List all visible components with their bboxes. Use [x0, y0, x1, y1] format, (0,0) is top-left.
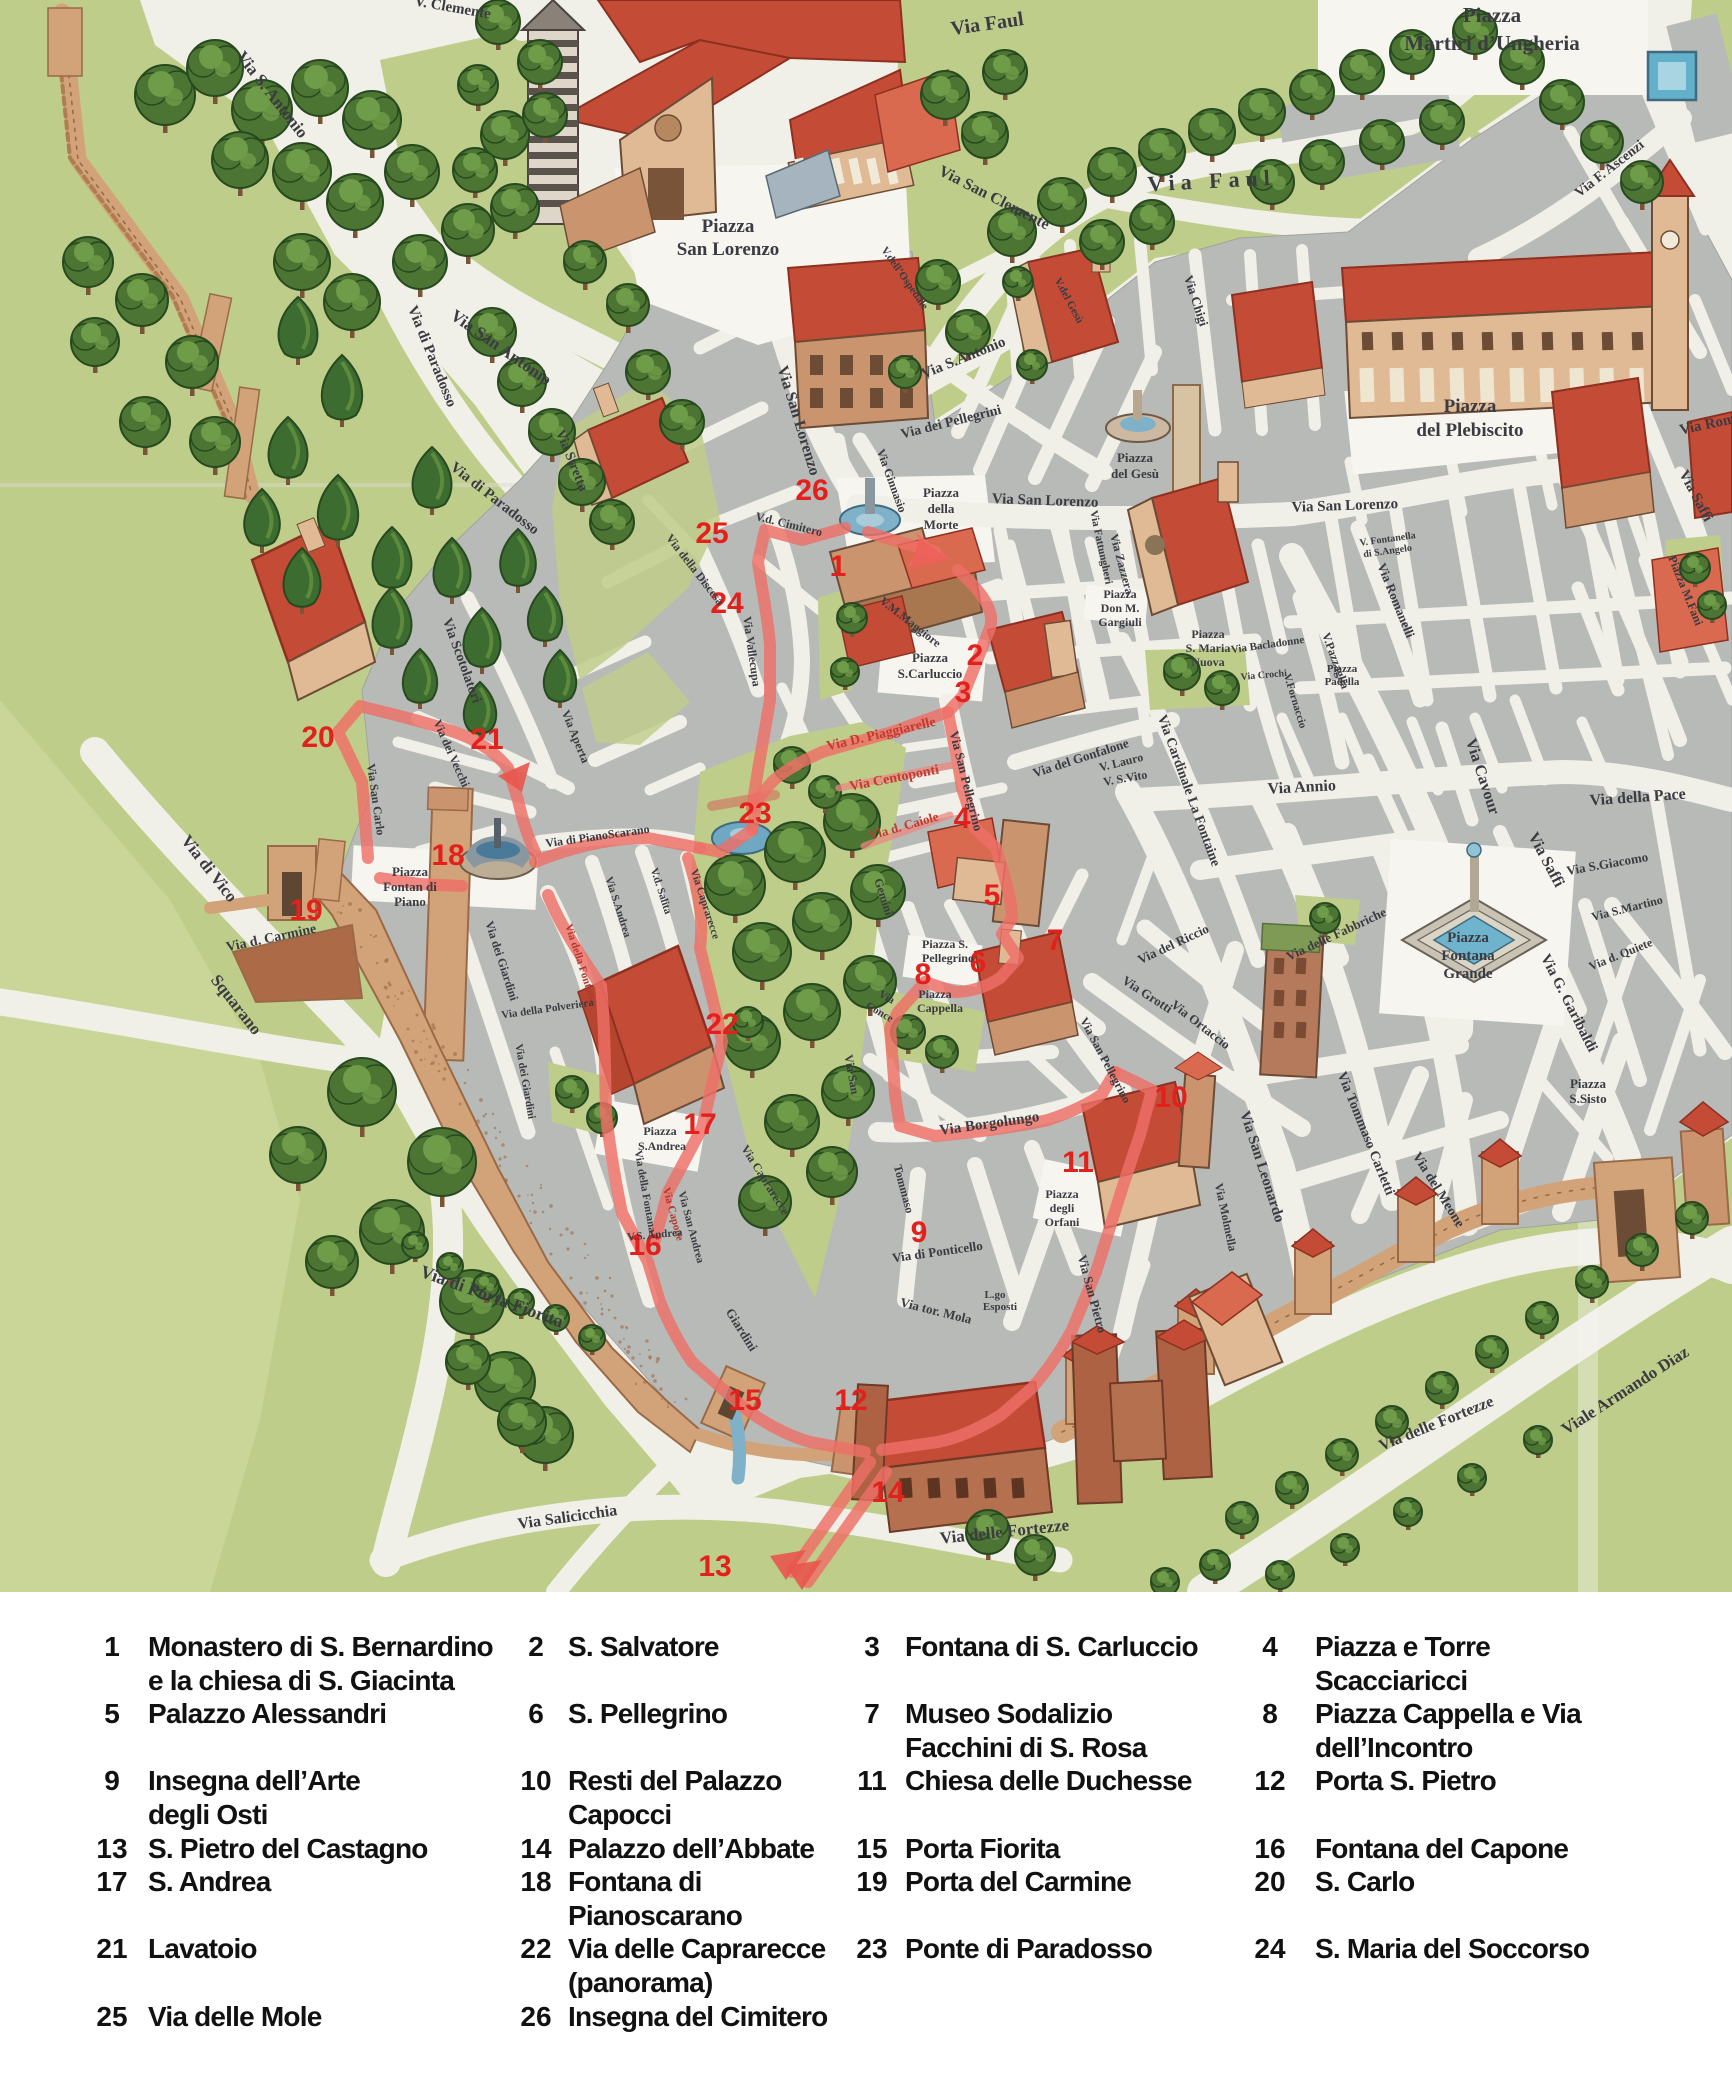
- svg-text:Porta del Carmine: Porta del Carmine: [905, 1866, 1131, 1897]
- svg-text:11: 11: [857, 1765, 887, 1796]
- svg-text:Padella: Padella: [1325, 676, 1360, 688]
- svg-text:20: 20: [301, 721, 334, 754]
- svg-text:16: 16: [1254, 1833, 1285, 1864]
- svg-text:Cappella: Cappella: [917, 1001, 963, 1015]
- svg-text:Piazza: Piazza: [1327, 663, 1358, 675]
- svg-text:S. Pellegrino: S. Pellegrino: [568, 1698, 728, 1729]
- svg-text:21: 21: [470, 723, 503, 756]
- svg-text:1: 1: [104, 1631, 120, 1662]
- svg-text:Piazza S.: Piazza S.: [922, 937, 968, 951]
- svg-text:22: 22: [705, 1008, 738, 1041]
- svg-text:7: 7: [864, 1698, 880, 1729]
- svg-text:25: 25: [96, 2001, 127, 2032]
- svg-text:S. Maria del Soccorso: S. Maria del Soccorso: [1315, 1933, 1590, 1964]
- svg-text:Pianoscarano: Pianoscarano: [568, 1900, 743, 1931]
- svg-text:Lavatoio: Lavatoio: [148, 1933, 257, 1964]
- svg-text:Chiesa delle Duchesse: Chiesa delle Duchesse: [905, 1765, 1192, 1796]
- svg-text:(panorama): (panorama): [568, 1967, 712, 1998]
- svg-text:Fontan di: Fontan di: [383, 879, 437, 894]
- svg-text:11: 11: [1062, 1146, 1094, 1179]
- svg-text:21: 21: [96, 1933, 127, 1964]
- svg-text:Palazzo Alessandri: Palazzo Alessandri: [148, 1698, 386, 1729]
- svg-text:Scacciaricci: Scacciaricci: [1315, 1665, 1467, 1696]
- svg-text:Piano: Piano: [394, 894, 426, 909]
- svg-text:13: 13: [96, 1833, 127, 1864]
- svg-text:24: 24: [1254, 1933, 1286, 1964]
- svg-text:S.Carluccio: S.Carluccio: [898, 666, 963, 681]
- svg-text:S. Pietro del Castagno: S. Pietro del Castagno: [148, 1833, 428, 1864]
- svg-text:10: 10: [1154, 1081, 1187, 1114]
- svg-text:19: 19: [289, 894, 322, 927]
- svg-text:20: 20: [1254, 1866, 1285, 1897]
- svg-text:2: 2: [967, 639, 984, 672]
- svg-text:L.go: L.go: [984, 1289, 1006, 1301]
- svg-text:Piazza: Piazza: [1447, 930, 1489, 946]
- svg-text:6: 6: [528, 1698, 544, 1729]
- svg-text:Fontana del Capone: Fontana del Capone: [1315, 1833, 1568, 1864]
- svg-text:Fontana di S. Carluccio: Fontana di S. Carluccio: [905, 1631, 1198, 1662]
- svg-text:Insegna del Cimitero: Insegna del Cimitero: [568, 2001, 828, 2032]
- svg-text:Orfani: Orfani: [1045, 1215, 1080, 1229]
- svg-text:del Plebiscito: del Plebiscito: [1416, 420, 1523, 441]
- svg-text:San Lorenzo: San Lorenzo: [677, 239, 780, 260]
- svg-text:17: 17: [683, 1108, 716, 1141]
- svg-text:Piazza: Piazza: [702, 216, 755, 237]
- svg-text:23: 23: [738, 797, 771, 830]
- svg-text:15: 15: [856, 1833, 887, 1864]
- svg-text:26: 26: [520, 2001, 551, 2032]
- svg-text:9: 9: [911, 1216, 928, 1249]
- svg-text:14: 14: [871, 1476, 905, 1509]
- svg-text:Piazza: Piazza: [1117, 450, 1154, 465]
- svg-text:15: 15: [728, 1384, 761, 1417]
- svg-text:Don M.: Don M.: [1101, 601, 1140, 615]
- svg-text:Insegna dell’Arte: Insegna dell’Arte: [148, 1765, 360, 1796]
- svg-text:Piazza Cappella e Via: Piazza Cappella e Via: [1315, 1698, 1582, 1729]
- svg-text:Piazza e Torre: Piazza e Torre: [1315, 1631, 1490, 1662]
- svg-text:Piazza: Piazza: [923, 485, 960, 500]
- svg-text:26: 26: [795, 474, 828, 507]
- svg-text:Museo Sodalizio: Museo Sodalizio: [905, 1698, 1113, 1729]
- svg-text:Via delle Caprarecce: Via delle Caprarecce: [568, 1933, 826, 1964]
- svg-text:Porta Fiorita: Porta Fiorita: [905, 1833, 1061, 1864]
- svg-text:17: 17: [96, 1866, 127, 1897]
- svg-text:Piazza: Piazza: [643, 1124, 676, 1138]
- svg-text:7: 7: [1047, 924, 1064, 957]
- svg-text:13: 13: [698, 1550, 731, 1583]
- svg-text:22: 22: [520, 1933, 551, 1964]
- svg-text:del Gesù: del Gesù: [1111, 466, 1159, 481]
- svg-text:2: 2: [528, 1631, 544, 1662]
- svg-text:1: 1: [830, 550, 847, 583]
- svg-text:S.Sisto: S.Sisto: [1569, 1091, 1606, 1106]
- svg-text:Capocci: Capocci: [568, 1799, 671, 1830]
- svg-text:10: 10: [520, 1765, 551, 1796]
- svg-text:Piazza: Piazza: [1191, 627, 1224, 641]
- svg-text:18: 18: [520, 1866, 551, 1897]
- svg-text:Piazza: Piazza: [392, 864, 429, 879]
- svg-text:12: 12: [1254, 1765, 1285, 1796]
- svg-text:dell’Incontro: dell’Incontro: [1315, 1732, 1473, 1763]
- svg-text:3: 3: [864, 1631, 880, 1662]
- svg-text:14: 14: [520, 1833, 552, 1864]
- svg-text:Piazza: Piazza: [918, 987, 951, 1001]
- svg-text:Facchini di S. Rosa: Facchini di S. Rosa: [905, 1732, 1148, 1763]
- svg-text:Martiri d’Ungheria: Martiri d’Ungheria: [1404, 31, 1580, 55]
- svg-text:Piazza: Piazza: [1444, 396, 1497, 417]
- svg-text:Via delle Mole: Via delle Mole: [148, 2001, 322, 2032]
- svg-text:Gargiuli: Gargiuli: [1098, 615, 1142, 629]
- svg-text:S. Carlo: S. Carlo: [1315, 1866, 1415, 1897]
- svg-text:Grande: Grande: [1443, 966, 1493, 982]
- svg-text:S. Maria: S. Maria: [1186, 641, 1231, 655]
- svg-text:e la chiesa di S. Giacinta: e la chiesa di S. Giacinta: [148, 1665, 455, 1696]
- svg-text:S. Salvatore: S. Salvatore: [568, 1631, 719, 1662]
- svg-text:23: 23: [856, 1933, 887, 1964]
- svg-text:degli: degli: [1050, 1201, 1075, 1215]
- svg-text:Palazzo dell’Abbate: Palazzo dell’Abbate: [568, 1833, 814, 1864]
- svg-text:19: 19: [856, 1866, 887, 1897]
- svg-text:Morte: Morte: [924, 517, 959, 532]
- svg-text:9: 9: [104, 1765, 120, 1796]
- svg-text:Piazza: Piazza: [912, 650, 949, 665]
- svg-text:Piazza: Piazza: [1045, 1187, 1078, 1201]
- svg-text:4: 4: [1262, 1631, 1278, 1662]
- svg-text:5: 5: [104, 1698, 120, 1729]
- svg-text:Fontana: Fontana: [1441, 948, 1495, 964]
- svg-text:Porta S. Pietro: Porta S. Pietro: [1315, 1765, 1497, 1796]
- svg-text:della: della: [928, 501, 955, 516]
- svg-text:Pellegrino: Pellegrino: [922, 951, 974, 965]
- svg-text:Piazza: Piazza: [1570, 1076, 1607, 1091]
- svg-text:Monastero di S. Bernardino: Monastero di S. Bernardino: [148, 1631, 493, 1662]
- svg-text:8: 8: [1262, 1698, 1278, 1729]
- svg-text:Fontana di: Fontana di: [568, 1866, 702, 1897]
- svg-text:Esposti: Esposti: [983, 1301, 1017, 1313]
- svg-text:25: 25: [695, 517, 728, 550]
- svg-text:18: 18: [431, 839, 464, 872]
- svg-text:Nuova: Nuova: [1191, 655, 1224, 669]
- svg-text:5: 5: [984, 879, 1001, 912]
- svg-text:12: 12: [834, 1384, 867, 1417]
- svg-text:S.Andrea: S.Andrea: [638, 1139, 686, 1153]
- svg-text:S. Andrea: S. Andrea: [148, 1866, 272, 1897]
- svg-text:Ponte di Paradosso: Ponte di Paradosso: [905, 1933, 1153, 1964]
- svg-text:degli Osti: degli Osti: [148, 1799, 268, 1830]
- svg-text:Piazza: Piazza: [1463, 3, 1522, 27]
- svg-text:Resti del Palazzo: Resti del Palazzo: [568, 1765, 782, 1796]
- svg-text:Via Annio: Via Annio: [1267, 777, 1336, 798]
